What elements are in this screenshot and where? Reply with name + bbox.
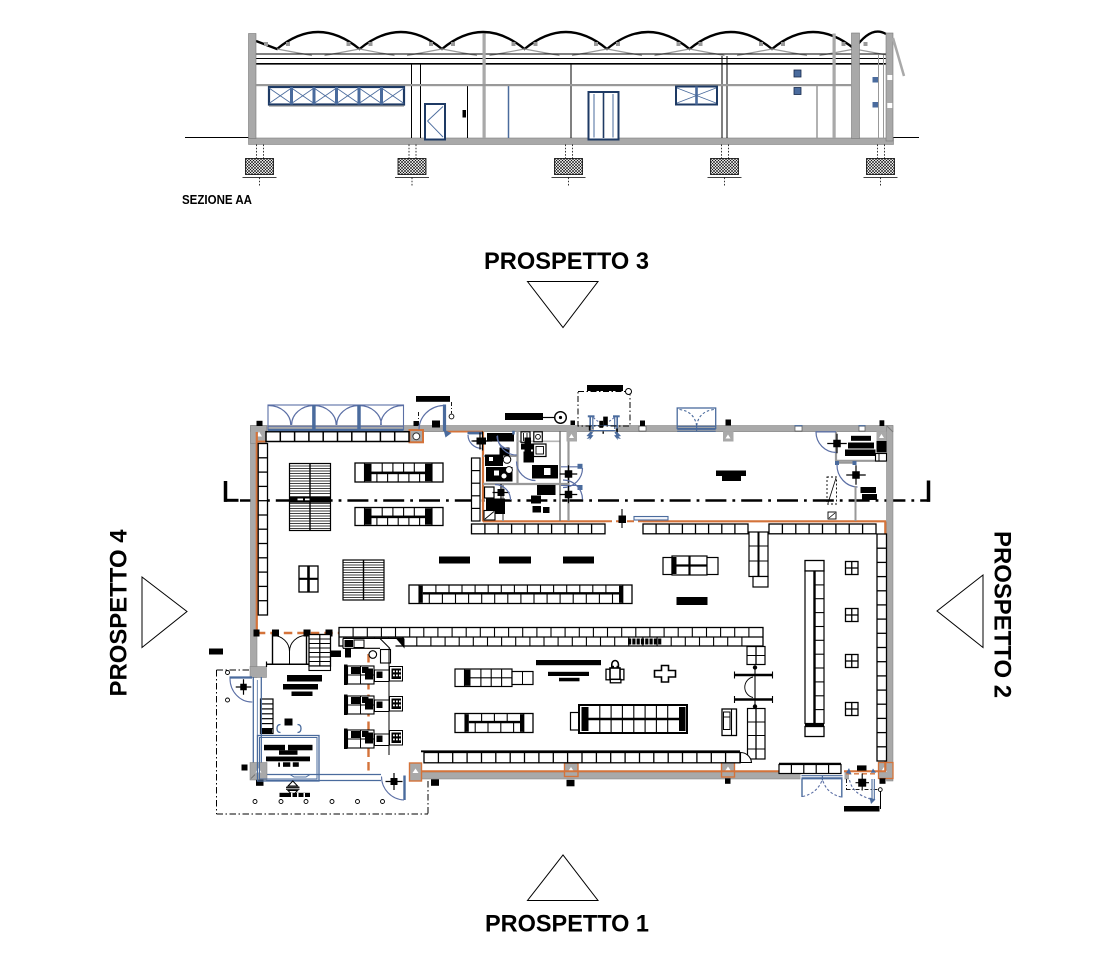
svg-text:PROSPETTO 3: PROSPETTO 3 [484, 248, 649, 275]
svg-text:PROSPETTO 4: PROSPETTO 4 [106, 529, 133, 697]
svg-text:PROSPETTO 1: PROSPETTO 1 [485, 911, 649, 938]
svg-text:SEZIONE AA: SEZIONE AA [182, 193, 252, 207]
svg-text:PROSPETTO 2: PROSPETTO 2 [989, 531, 1016, 698]
